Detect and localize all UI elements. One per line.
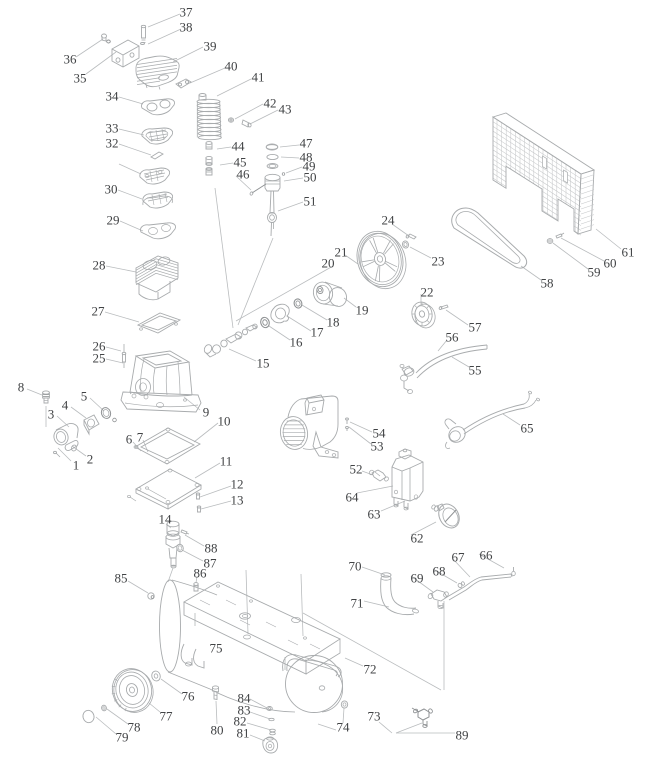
svg-text:59: 59	[588, 265, 601, 280]
svg-text:56: 56	[446, 330, 460, 345]
svg-text:5: 5	[81, 389, 88, 404]
svg-text:4: 4	[62, 398, 69, 413]
svg-text:89: 89	[456, 728, 469, 743]
svg-text:19: 19	[356, 303, 369, 318]
svg-text:20: 20	[322, 256, 335, 271]
svg-text:24: 24	[382, 213, 396, 228]
svg-text:43: 43	[279, 102, 292, 117]
svg-text:22: 22	[421, 285, 434, 300]
svg-text:64: 64	[346, 490, 360, 505]
svg-text:28: 28	[93, 258, 106, 273]
svg-text:3: 3	[48, 407, 55, 422]
svg-text:70: 70	[349, 559, 362, 574]
svg-text:65: 65	[521, 421, 534, 436]
svg-text:44: 44	[232, 139, 246, 154]
svg-text:73: 73	[368, 709, 381, 724]
svg-text:55: 55	[469, 363, 482, 378]
svg-text:30: 30	[105, 182, 118, 197]
svg-text:1: 1	[73, 458, 80, 473]
svg-text:47: 47	[300, 136, 314, 151]
svg-text:40: 40	[225, 59, 238, 74]
svg-text:46: 46	[237, 167, 251, 182]
svg-text:63: 63	[368, 507, 381, 522]
svg-text:77: 77	[160, 709, 174, 724]
svg-text:50: 50	[304, 170, 317, 185]
svg-text:36: 36	[64, 52, 78, 67]
svg-text:86: 86	[194, 566, 208, 581]
svg-text:21: 21	[335, 245, 348, 260]
svg-text:17: 17	[311, 325, 325, 340]
svg-text:67: 67	[452, 550, 466, 565]
svg-text:68: 68	[433, 564, 446, 579]
svg-text:88: 88	[205, 541, 218, 556]
svg-text:71: 71	[351, 596, 364, 611]
svg-text:57: 57	[469, 320, 483, 335]
svg-text:58: 58	[541, 276, 554, 291]
svg-text:2: 2	[87, 452, 94, 467]
svg-text:33: 33	[106, 121, 119, 136]
svg-text:23: 23	[432, 254, 445, 269]
svg-text:75: 75	[210, 641, 223, 656]
svg-text:42: 42	[264, 96, 277, 111]
svg-text:61: 61	[622, 245, 635, 260]
svg-text:37: 37	[180, 5, 194, 20]
svg-text:35: 35	[74, 71, 87, 86]
svg-text:69: 69	[411, 571, 424, 586]
svg-text:78: 78	[128, 720, 141, 735]
svg-text:9: 9	[203, 405, 210, 420]
svg-text:14: 14	[159, 512, 173, 527]
svg-text:62: 62	[411, 531, 424, 546]
svg-text:41: 41	[252, 70, 265, 85]
svg-text:7: 7	[137, 430, 144, 445]
svg-text:27: 27	[92, 304, 106, 319]
svg-text:80: 80	[211, 723, 224, 738]
svg-text:16: 16	[290, 335, 304, 350]
svg-text:76: 76	[182, 689, 196, 704]
svg-text:60: 60	[604, 256, 617, 271]
svg-text:29: 29	[107, 213, 120, 228]
svg-text:15: 15	[257, 356, 270, 371]
svg-text:34: 34	[106, 89, 120, 104]
svg-text:25: 25	[93, 351, 106, 366]
svg-text:81: 81	[237, 726, 250, 741]
svg-text:39: 39	[204, 39, 217, 54]
svg-text:66: 66	[480, 548, 494, 563]
svg-text:18: 18	[327, 315, 340, 330]
svg-text:32: 32	[106, 136, 119, 151]
svg-text:13: 13	[231, 493, 244, 508]
svg-text:12: 12	[231, 477, 244, 492]
svg-text:8: 8	[18, 380, 25, 395]
svg-text:72: 72	[364, 662, 377, 677]
svg-text:10: 10	[218, 414, 231, 429]
svg-text:38: 38	[180, 20, 193, 35]
svg-text:74: 74	[337, 720, 351, 735]
svg-text:85: 85	[115, 571, 128, 586]
svg-text:11: 11	[220, 454, 233, 469]
svg-text:53: 53	[371, 439, 384, 454]
svg-text:79: 79	[116, 730, 129, 745]
svg-text:51: 51	[304, 194, 317, 209]
svg-text:6: 6	[126, 432, 133, 447]
svg-text:52: 52	[350, 462, 363, 477]
